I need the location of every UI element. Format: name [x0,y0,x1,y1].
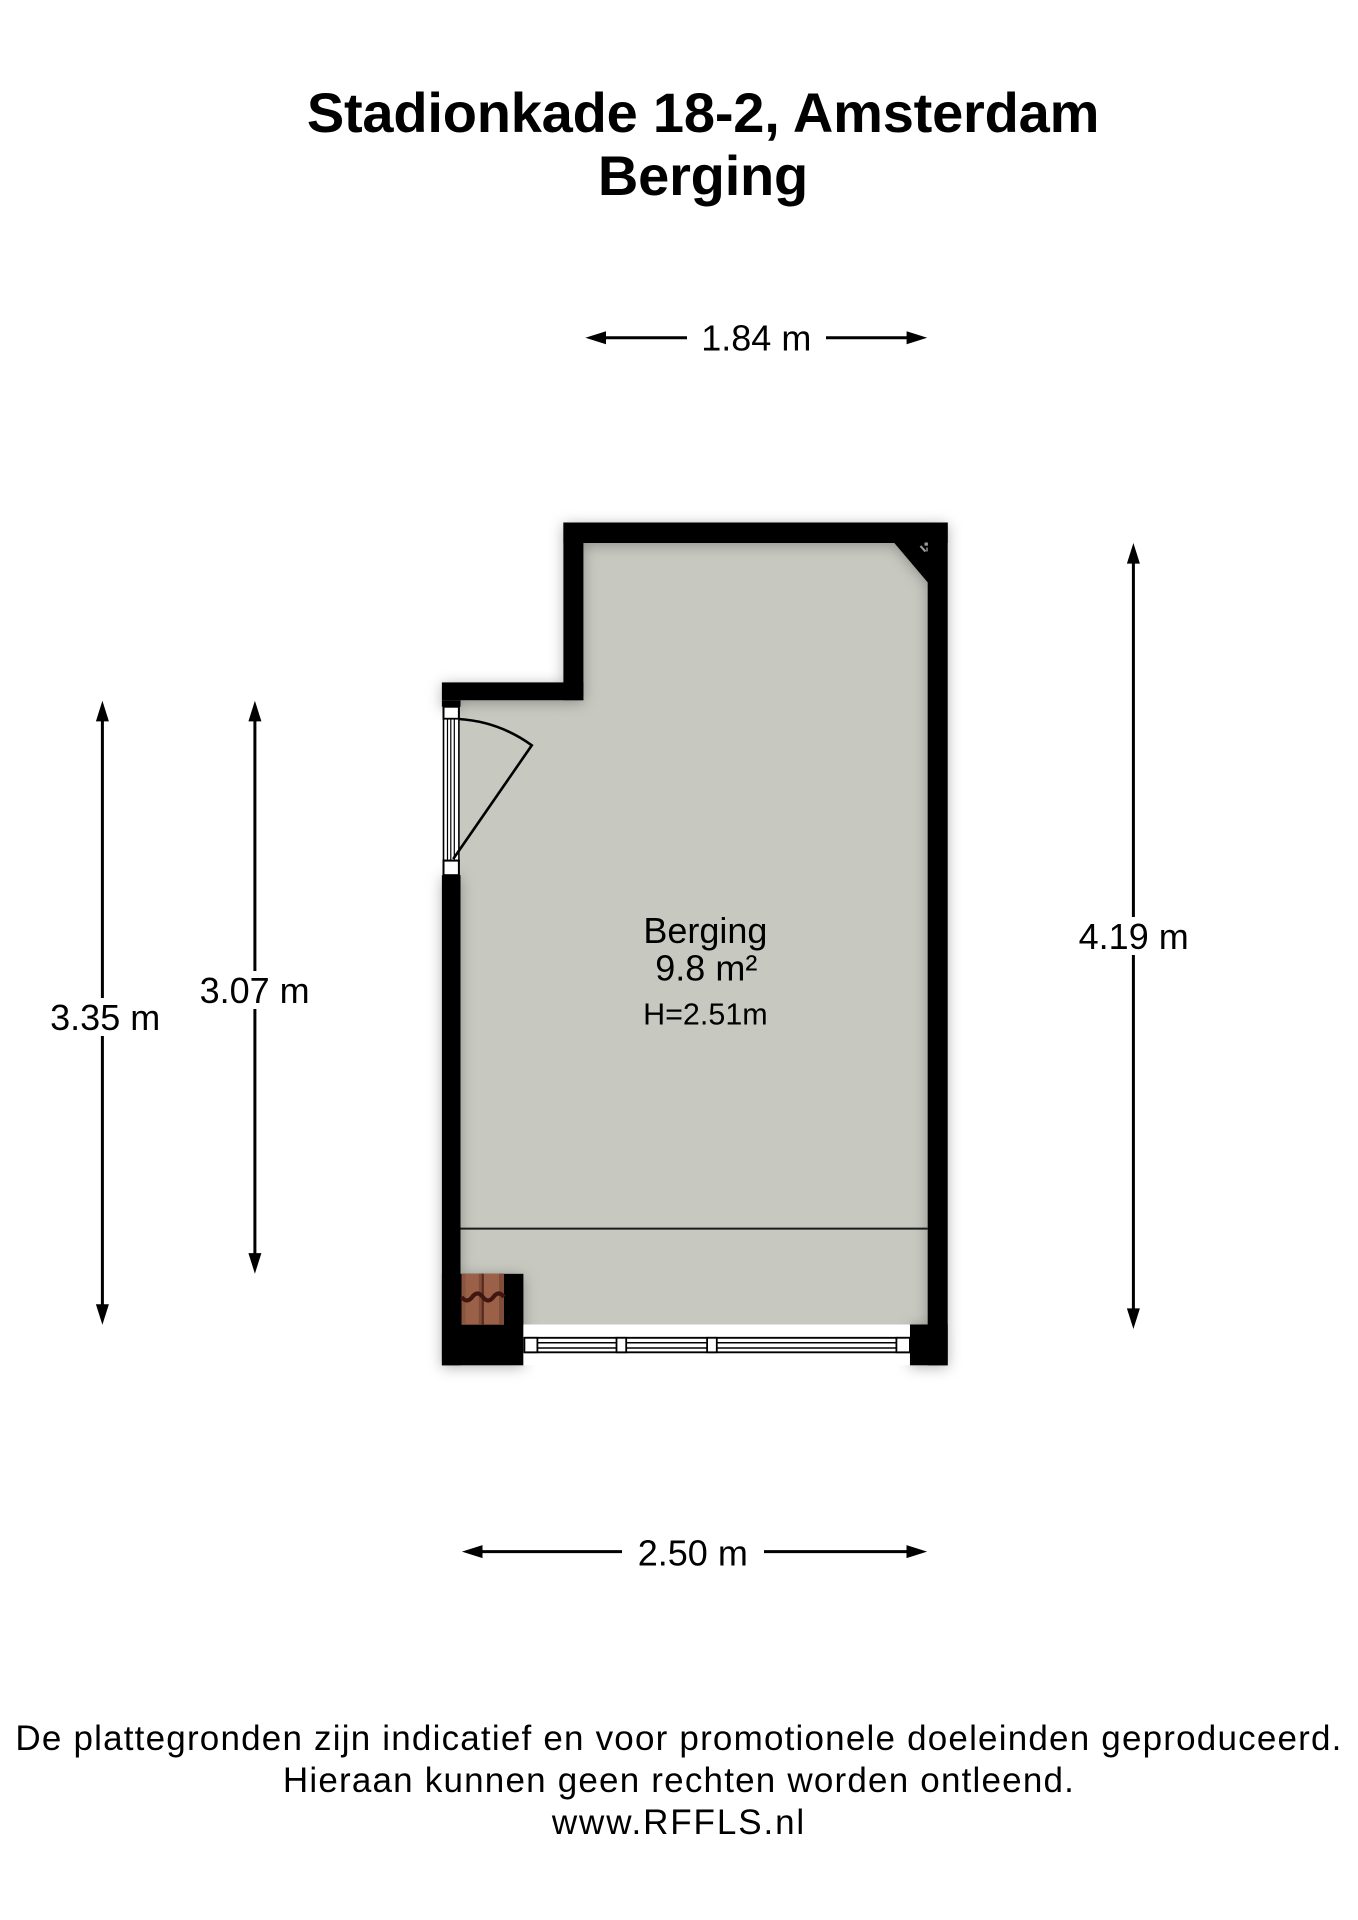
svg-text:2.50 m: 2.50 m [638,1532,748,1573]
svg-text:H=2.51m: H=2.51m [643,998,768,1032]
svg-text:3.07 m: 3.07 m [200,970,310,1011]
svg-text:4.19 m: 4.19 m [1079,916,1189,957]
svg-text:Berging: Berging [643,910,767,951]
svg-text:Stadionkade 18-2, Amsterdam: Stadionkade 18-2, Amsterdam [307,81,1099,144]
svg-text:9.8 m²: 9.8 m² [655,948,757,989]
svg-text:www.RFFLS.nl: www.RFFLS.nl [551,1803,806,1842]
svg-text:3.35 m: 3.35 m [50,997,160,1038]
svg-text:De plattegronden zijn indicati: De plattegronden zijn indicatief en voor… [15,1719,1342,1758]
svg-text:Hieraan kunnen geen rechten wo: Hieraan kunnen geen rechten worden ontle… [283,1761,1075,1800]
svg-text:Berging: Berging [598,144,808,207]
svg-text:1.84 m: 1.84 m [701,318,811,359]
